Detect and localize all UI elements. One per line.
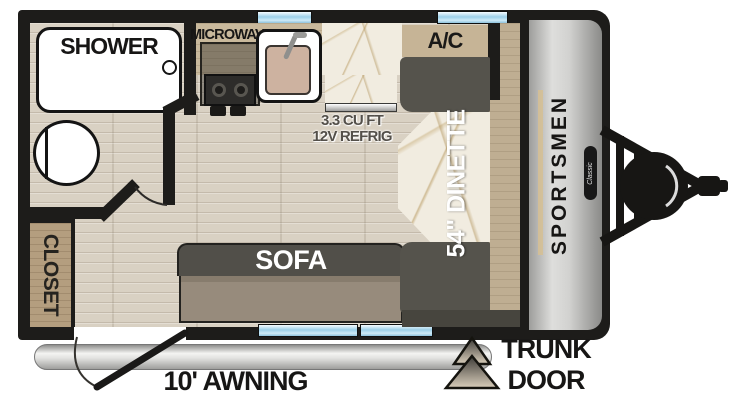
shower-label: SHOWER bbox=[44, 33, 174, 60]
coupler-icon bbox=[698, 176, 720, 196]
faucet-head-icon bbox=[293, 32, 307, 38]
series-badge: Classic bbox=[584, 146, 597, 200]
trunk-door-arrows-icon bbox=[446, 336, 504, 394]
stove-knob bbox=[210, 106, 226, 116]
closet: CLOSET bbox=[30, 219, 75, 327]
entry-step-storage bbox=[402, 310, 520, 327]
sofa-backrest: SOFA bbox=[177, 243, 405, 276]
stove-cooktop bbox=[204, 74, 256, 106]
refrigerator-label-line2: 12V REFRIG bbox=[296, 129, 408, 145]
trunk-door-line2: DOOR bbox=[492, 365, 600, 396]
burner-icon bbox=[212, 83, 226, 97]
entry-door-swing bbox=[60, 325, 200, 397]
series-badge-text: Classic bbox=[587, 162, 594, 185]
stove-knob bbox=[230, 106, 246, 116]
trailer-hitch bbox=[598, 116, 732, 256]
trunk-door-line1: TRUNK bbox=[492, 334, 600, 365]
dinette-label-wrap: 54" DINETTE bbox=[430, 78, 484, 288]
closet-label: CLOSET bbox=[39, 234, 63, 316]
sofa-seat bbox=[179, 276, 403, 323]
toilet bbox=[33, 120, 100, 186]
kitchen-counter-marble bbox=[322, 23, 402, 75]
ac-unit: A/C bbox=[402, 25, 488, 57]
sofa-label: SOFA bbox=[255, 245, 327, 276]
dinette-label: 54" DINETTE bbox=[443, 109, 472, 257]
shower-drain-icon bbox=[162, 60, 177, 75]
brand-label: SPORTSMEN bbox=[530, 30, 590, 320]
refrigerator-front-bar bbox=[325, 103, 397, 112]
bathroom-door-swing-arc bbox=[120, 180, 200, 220]
window-bottom-left bbox=[258, 324, 358, 337]
burner-icon bbox=[234, 83, 248, 97]
refrigerator-label-line1: 3.3 CU FT bbox=[296, 113, 408, 129]
refrigerator-label: 3.3 CU FT 12V REFRIG bbox=[296, 113, 408, 145]
toilet-tank-line bbox=[45, 127, 48, 179]
trunk-door-label: TRUNK DOOR bbox=[492, 334, 600, 396]
floorplan-canvas: SPORTSMEN Classic SHOWER CLOSET MICROWAV… bbox=[0, 0, 744, 415]
brand-text: SPORTSMEN bbox=[548, 95, 572, 255]
